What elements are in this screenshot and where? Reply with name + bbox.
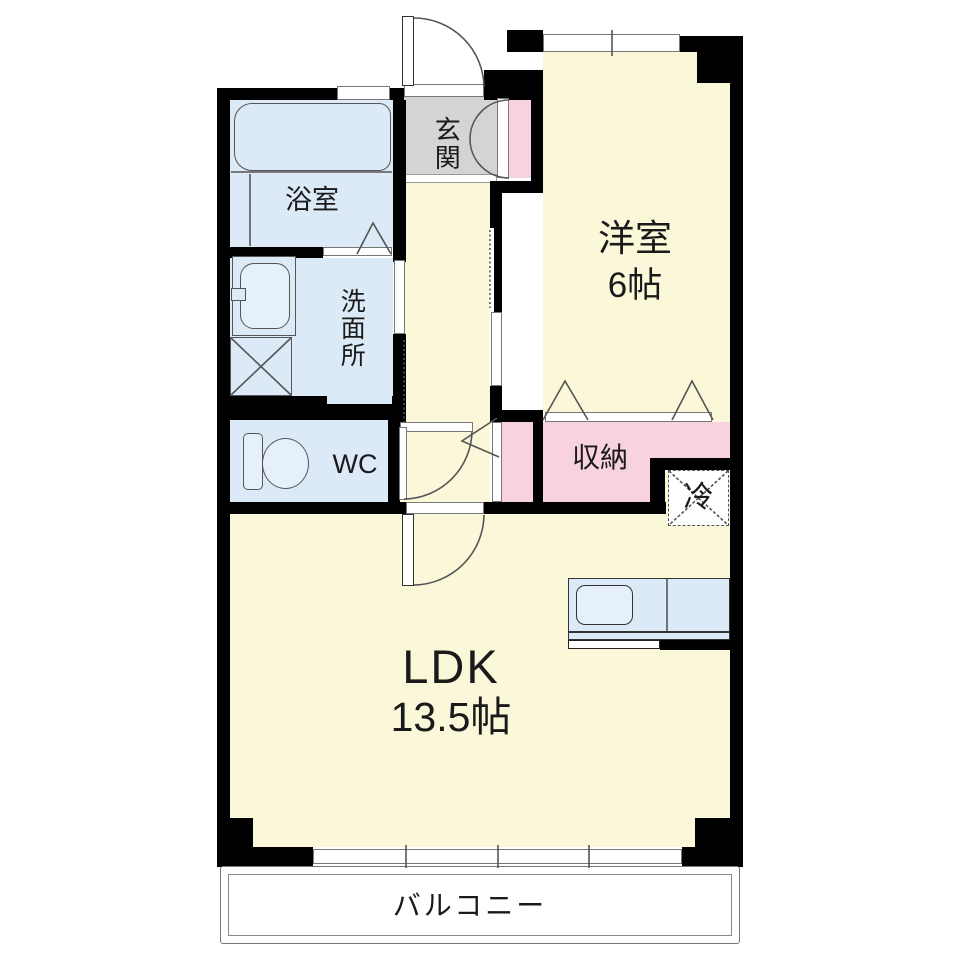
entrance-door-arc <box>414 18 484 87</box>
washroom-label: 洗面所 <box>338 262 364 394</box>
floor-plan: 玄関 浴室 洗面所 WC 洋室 6帖 収納 冷 LDK 13.5帖 バルコニー <box>0 0 960 960</box>
refrigerator-label: 冷 <box>668 482 729 514</box>
western-room-label: 洋室 <box>560 220 710 259</box>
genkan-cabinet-arc-lower <box>470 139 509 178</box>
storage-label: 収納 <box>540 443 660 472</box>
linework-overlay <box>0 0 960 960</box>
balcony-label: バルコニー <box>330 891 610 920</box>
toilet-label: WC <box>322 450 388 478</box>
western-room-size: 6帖 <box>560 268 710 305</box>
genkan-cabinet-arc-upper <box>470 100 509 139</box>
corridor-closet-door-symbol <box>462 418 499 457</box>
genkan-label: 玄関 <box>432 106 459 182</box>
storage-folding-triangle-right <box>672 381 713 420</box>
bathroom-label: 浴室 <box>252 186 372 214</box>
storage-folding-triangle-left <box>543 381 588 420</box>
washing-machine-cross <box>231 338 291 395</box>
ldk-door-arc <box>414 515 484 585</box>
ldk-size: 13.5帖 <box>351 696 551 739</box>
bathroom-folding-door-triangle <box>357 223 391 254</box>
ldk-window-ticks <box>406 845 589 868</box>
ldk-label: LDK <box>351 642 551 691</box>
